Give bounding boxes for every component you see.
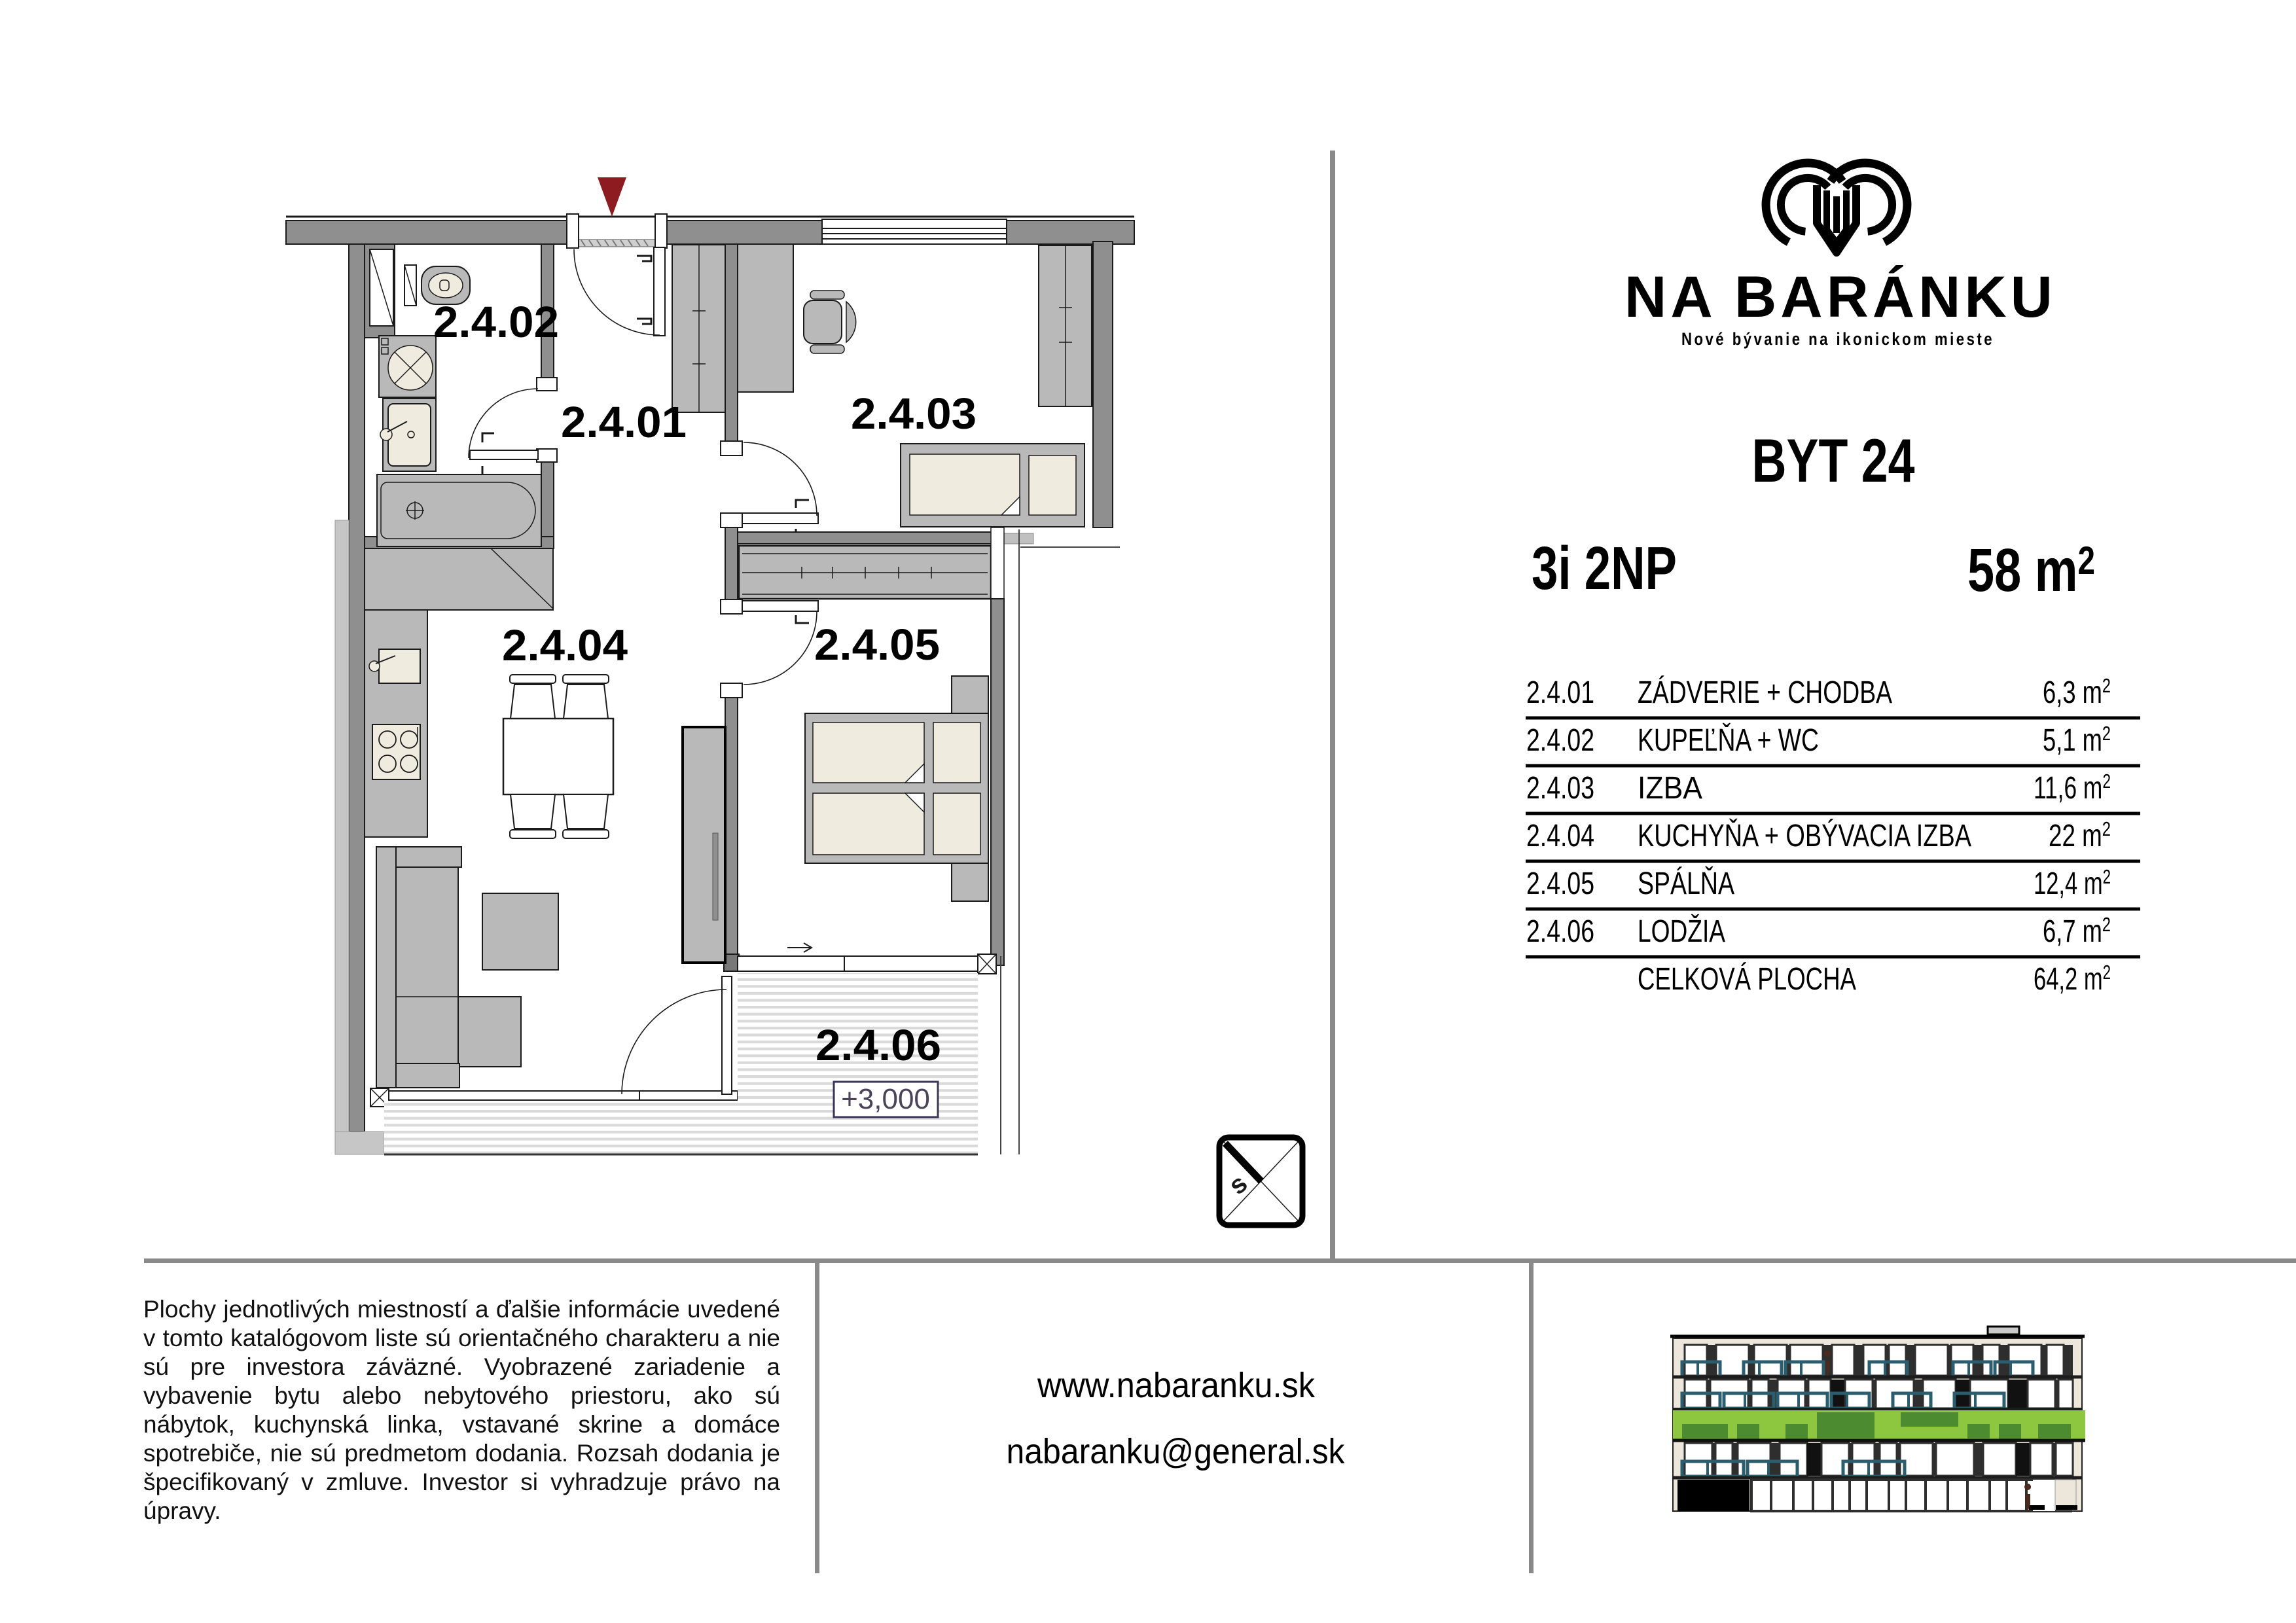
svg-text:ZÁDVERIE + CHODBA: ZÁDVERIE + CHODBA	[1638, 675, 1892, 710]
svg-text:58 m2: 58 m2	[1967, 536, 2095, 604]
svg-text:IZBA: IZBA	[1638, 771, 1702, 806]
svg-text:2.4.05: 2.4.05	[1526, 866, 1594, 901]
svg-text:2.4.02: 2.4.02	[1526, 723, 1594, 758]
svg-text:2.4.01: 2.4.01	[561, 398, 687, 447]
svg-text:KUCHYŇA + OBÝVACIA IZBA: KUCHYŇA + OBÝVACIA IZBA	[1638, 819, 1971, 853]
svg-text:11,6 m2: 11,6 m2	[2034, 770, 2111, 806]
svg-text:nabaranku@general.sk: nabaranku@general.sk	[1007, 1432, 1346, 1471]
svg-text:SPÁLŇA: SPÁLŇA	[1638, 866, 1734, 901]
svg-text:NA BARÁNKU: NA BARÁNKU	[1624, 264, 2056, 329]
svg-text:2.4.02: 2.4.02	[433, 298, 559, 347]
svg-text:64,2 m2: 64,2 m2	[2034, 961, 2111, 997]
svg-text:2.4.06: 2.4.06	[1526, 914, 1594, 949]
svg-text:2.4.03: 2.4.03	[851, 389, 977, 438]
svg-text:+3,000: +3,000	[841, 1083, 930, 1115]
svg-text:Nové bývanie na ikonickom mies: Nové bývanie na ikonickom mieste	[1681, 329, 1994, 349]
svg-text:BYT 24: BYT 24	[1752, 426, 1915, 495]
svg-text:2.4.06: 2.4.06	[816, 1021, 941, 1070]
svg-text:3i 2NP: 3i 2NP	[1532, 534, 1677, 602]
svg-text:LODŽIA: LODŽIA	[1638, 914, 1725, 949]
svg-text:6,7 m2: 6,7 m2	[2043, 913, 2111, 949]
svg-text:2.4.05: 2.4.05	[814, 620, 940, 669]
svg-text:2.4.03: 2.4.03	[1526, 771, 1594, 806]
svg-text:12,4 m2: 12,4 m2	[2034, 865, 2111, 901]
svg-text:6,3 m2: 6,3 m2	[2043, 674, 2111, 710]
svg-text:2.4.04: 2.4.04	[502, 621, 628, 670]
svg-text:CELKOVÁ PLOCHA: CELKOVÁ PLOCHA	[1638, 962, 1856, 997]
svg-text:5,1 m2: 5,1 m2	[2043, 722, 2111, 758]
svg-text:2.4.04: 2.4.04	[1526, 819, 1594, 853]
svg-text:22 m2: 22 m2	[2049, 817, 2111, 853]
svg-text:KUPEĽŇA + WC: KUPEĽŇA + WC	[1638, 723, 1819, 758]
svg-text:www.nabaranku.sk: www.nabaranku.sk	[1037, 1366, 1316, 1405]
svg-text:2.4.01: 2.4.01	[1526, 675, 1594, 710]
